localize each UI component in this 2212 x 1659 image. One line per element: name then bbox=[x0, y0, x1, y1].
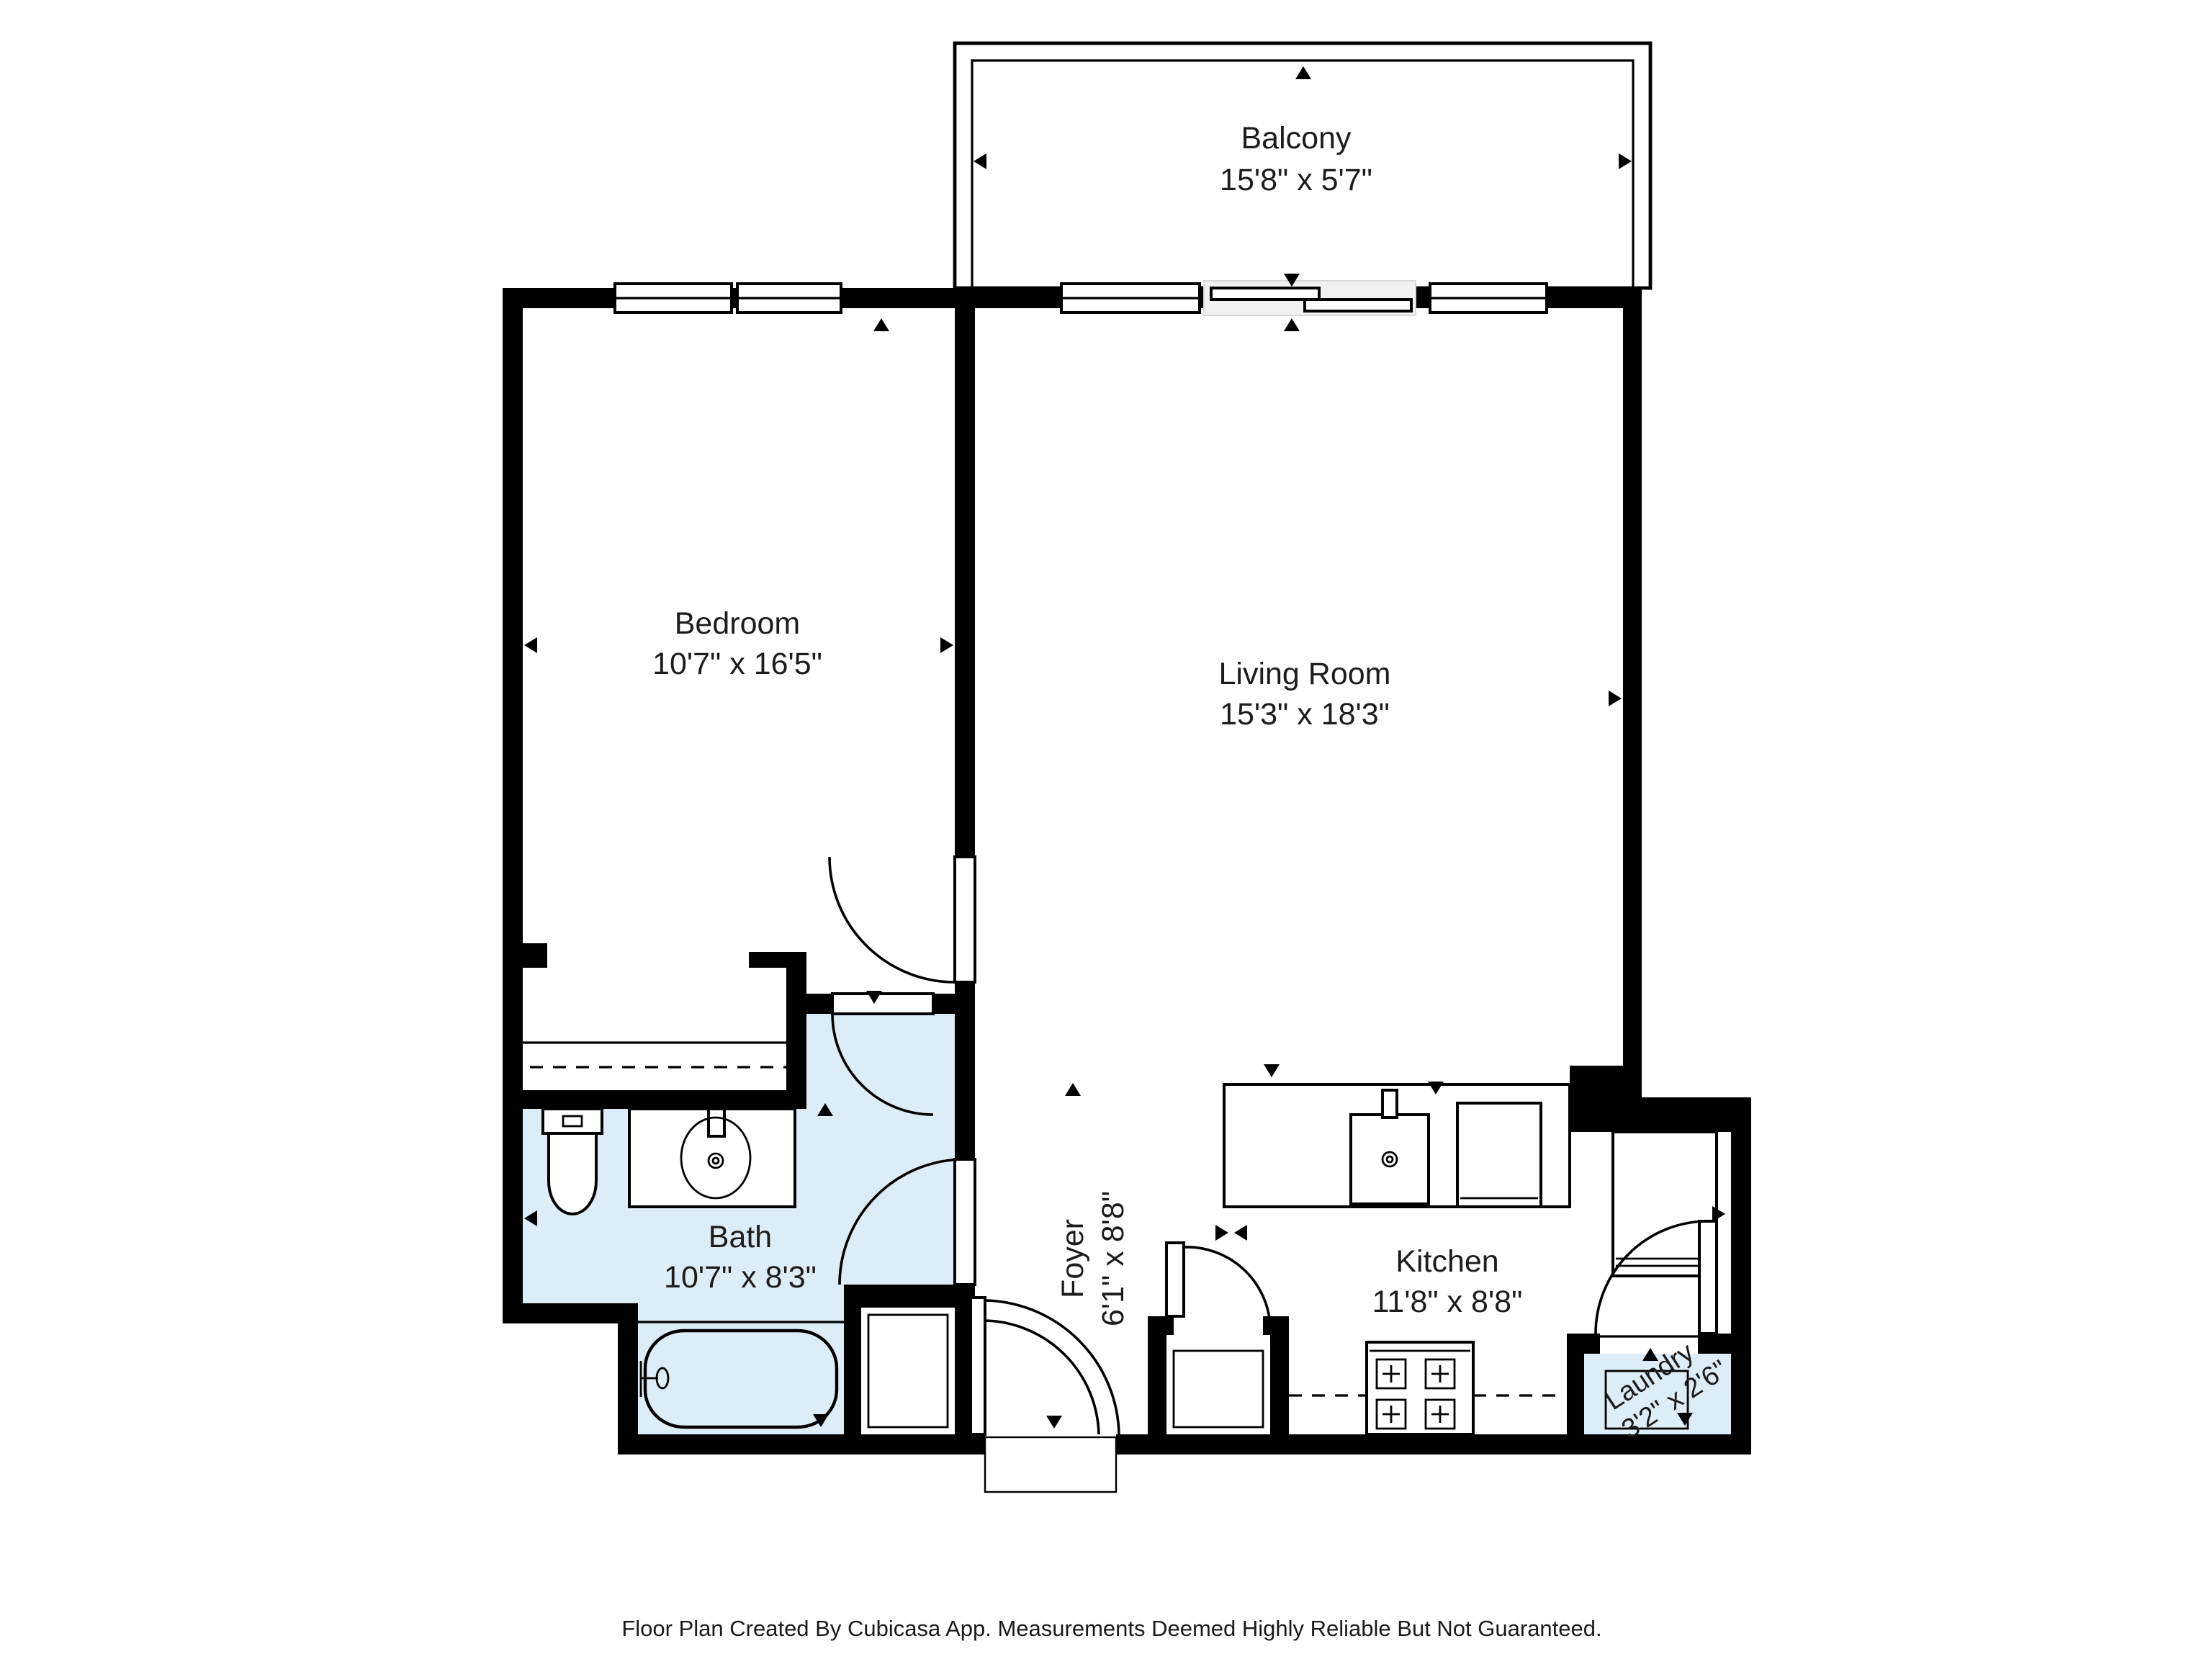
bathroom-sink-vanity bbox=[629, 1109, 795, 1207]
arrow-left-bedroom bbox=[524, 637, 537, 653]
balcony-label: Balcony bbox=[1241, 121, 1352, 156]
bedroom-window bbox=[615, 284, 841, 313]
arrow-right-balcony bbox=[1619, 153, 1632, 169]
floorplan-page: { "floorplan": { "app_attribution": "Cub… bbox=[0, 0, 2212, 1659]
arrow-up-balcony bbox=[1295, 66, 1311, 79]
arrow-right-living bbox=[1609, 691, 1622, 706]
foyer-label-group: Foyer 6'1" x 8'8" bbox=[1056, 1191, 1130, 1326]
hall-closet bbox=[861, 1308, 955, 1434]
foyer-label: Foyer bbox=[1056, 1219, 1090, 1298]
bedroom-label: Bedroom bbox=[675, 606, 800, 641]
living-window-left bbox=[1061, 284, 1200, 313]
wall-bath-connector bbox=[786, 962, 806, 1109]
wall-laundry-top-b bbox=[1698, 1334, 1731, 1354]
arrow-left-balcony bbox=[974, 153, 986, 169]
wall-kitchen-closet-top-b bbox=[1263, 1316, 1289, 1335]
wall-bath-bottom-left bbox=[503, 1303, 638, 1323]
wall-bath-top-left bbox=[503, 1090, 806, 1109]
kitchen-label: Kitchen bbox=[1395, 1244, 1498, 1279]
wall-right-living bbox=[1623, 288, 1642, 1097]
wall-divider-bedroom-living bbox=[955, 308, 975, 857]
arrow-up-living-bottom bbox=[1065, 1083, 1081, 1096]
arrow-right-kitchen bbox=[1712, 1206, 1725, 1222]
wall-bath-foyer-upper bbox=[955, 1014, 975, 1159]
wall-closet-stub-left bbox=[523, 943, 547, 968]
footer-disclaimer: Floor Plan Created By Cubicasa App. Meas… bbox=[621, 1616, 1601, 1641]
foyer-dims: 6'1" x 8'8" bbox=[1096, 1191, 1130, 1326]
bedroom-dims: 10'7" x 16'5" bbox=[652, 647, 822, 681]
living-window-right bbox=[1430, 284, 1547, 313]
bedroom-door bbox=[829, 857, 975, 982]
bath-dims: 10'7" x 8'3" bbox=[664, 1260, 817, 1295]
toilet bbox=[543, 1109, 602, 1214]
butterfly-marker-closet-door bbox=[1215, 1225, 1247, 1241]
arrow-right-bedroom bbox=[940, 637, 953, 653]
bedroom-closet bbox=[523, 1043, 806, 1067]
windows bbox=[615, 281, 1547, 315]
wall-kitchen-closet-top-a bbox=[1148, 1316, 1174, 1335]
entry-door bbox=[971, 1298, 1119, 1492]
kitchen-dims: 11'8" x 8'8" bbox=[1372, 1285, 1523, 1319]
wall-right-kitchen bbox=[1731, 1132, 1751, 1455]
wall-tub-alcove-left bbox=[618, 1303, 638, 1434]
arrow-down-entry bbox=[1046, 1416, 1062, 1429]
kitchen-closet-door bbox=[1166, 1243, 1270, 1325]
wall-bath-top-right-a bbox=[786, 994, 832, 1014]
balcony-dims: 15'8" x 5'7" bbox=[1220, 163, 1372, 197]
bath-floor-upper-right bbox=[806, 1012, 955, 1109]
floor-plan: Balcony 15'8" x 5'7" Bedroom 10'7" x 16'… bbox=[0, 0, 2212, 1659]
wall-bottom-right bbox=[1116, 1434, 1751, 1455]
wall-hall-closet-left bbox=[844, 1290, 861, 1434]
entry-threshold bbox=[985, 1437, 1116, 1492]
arrow-down-counter bbox=[1264, 1064, 1280, 1077]
wall-left bbox=[503, 288, 523, 1323]
arrow-up-bedroom bbox=[873, 318, 889, 331]
stove bbox=[1367, 1342, 1473, 1434]
wall-laundry-top-a bbox=[1567, 1334, 1600, 1354]
wall-bath-top-right-b bbox=[933, 994, 975, 1014]
dishwasher bbox=[1457, 1103, 1541, 1207]
living-room-label: Living Room bbox=[1219, 657, 1391, 691]
living-room-dims: 15'3" x 18'3" bbox=[1220, 697, 1390, 732]
wall-hall-closet-top bbox=[844, 1285, 975, 1308]
arrow-up-living-top bbox=[1284, 318, 1300, 331]
hall-closet-interior bbox=[861, 1308, 955, 1434]
kitchen-closet bbox=[1166, 1335, 1270, 1434]
wall-kitchen-top-right bbox=[1642, 1097, 1751, 1132]
bath-label: Bath bbox=[709, 1220, 772, 1254]
wall-kitchen-jog-block bbox=[1570, 1066, 1642, 1132]
balcony-sliding-door bbox=[1204, 281, 1416, 315]
wall-bottom-left bbox=[618, 1434, 985, 1455]
